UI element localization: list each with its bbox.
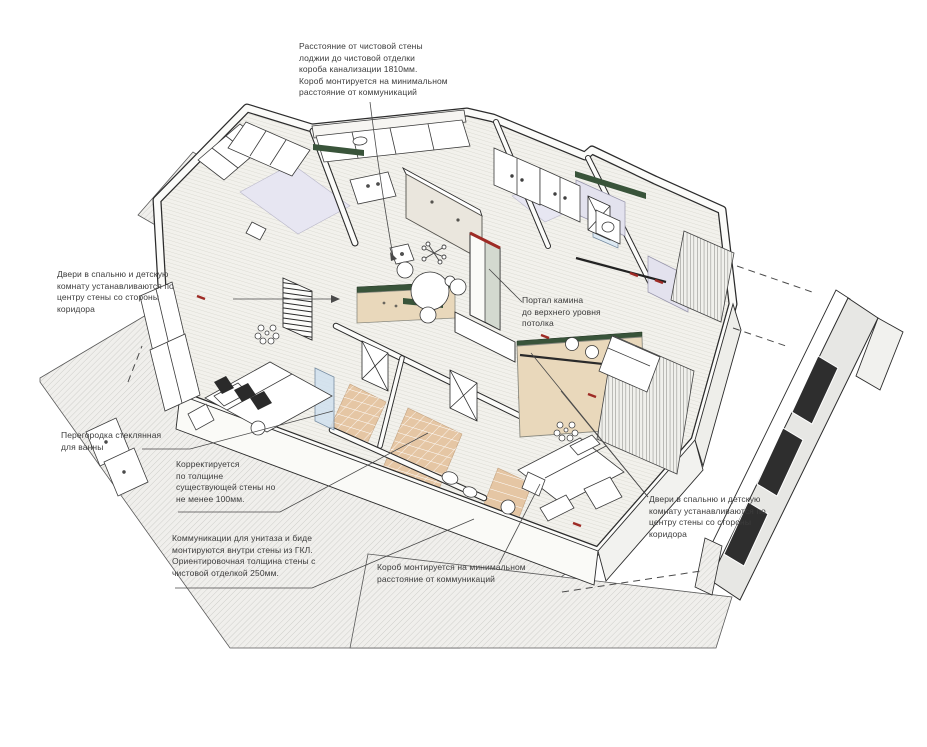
sink bbox=[251, 421, 265, 435]
loggia-end-cap bbox=[695, 538, 722, 595]
screenshot-canvas: Расстояние от чистовой стены лоджии до ч… bbox=[0, 0, 927, 747]
pouf bbox=[586, 346, 599, 359]
annotation-doors-right: Двери в спальню и детскую комнату устана… bbox=[649, 494, 804, 540]
annotation-duct-bottom: Короб монтируется на минимальном расстоя… bbox=[377, 562, 572, 585]
annotation-wc-communications: Коммуникации для унитаза и биде монтирую… bbox=[172, 533, 357, 579]
annotation-wall-thickness: Корректируется по толщине существующей с… bbox=[176, 459, 331, 505]
annotation-glass-partition: Перегородка стеклянная для ванны bbox=[61, 430, 196, 453]
annotation-fireplace-portal: Портал камина до верхнего уровня потолка bbox=[522, 295, 637, 330]
chair bbox=[397, 262, 413, 278]
pouf bbox=[501, 500, 515, 514]
pouf bbox=[566, 338, 579, 351]
dining-table bbox=[411, 272, 449, 310]
annotation-duct-distance: Расстояние от чистовой стены лоджии до ч… bbox=[299, 41, 474, 99]
annotation-doors-left: Двери в спальню и детскую комнату устана… bbox=[57, 269, 207, 315]
floorplan-drawing bbox=[0, 0, 927, 747]
chair bbox=[450, 279, 466, 295]
chair bbox=[420, 307, 436, 323]
